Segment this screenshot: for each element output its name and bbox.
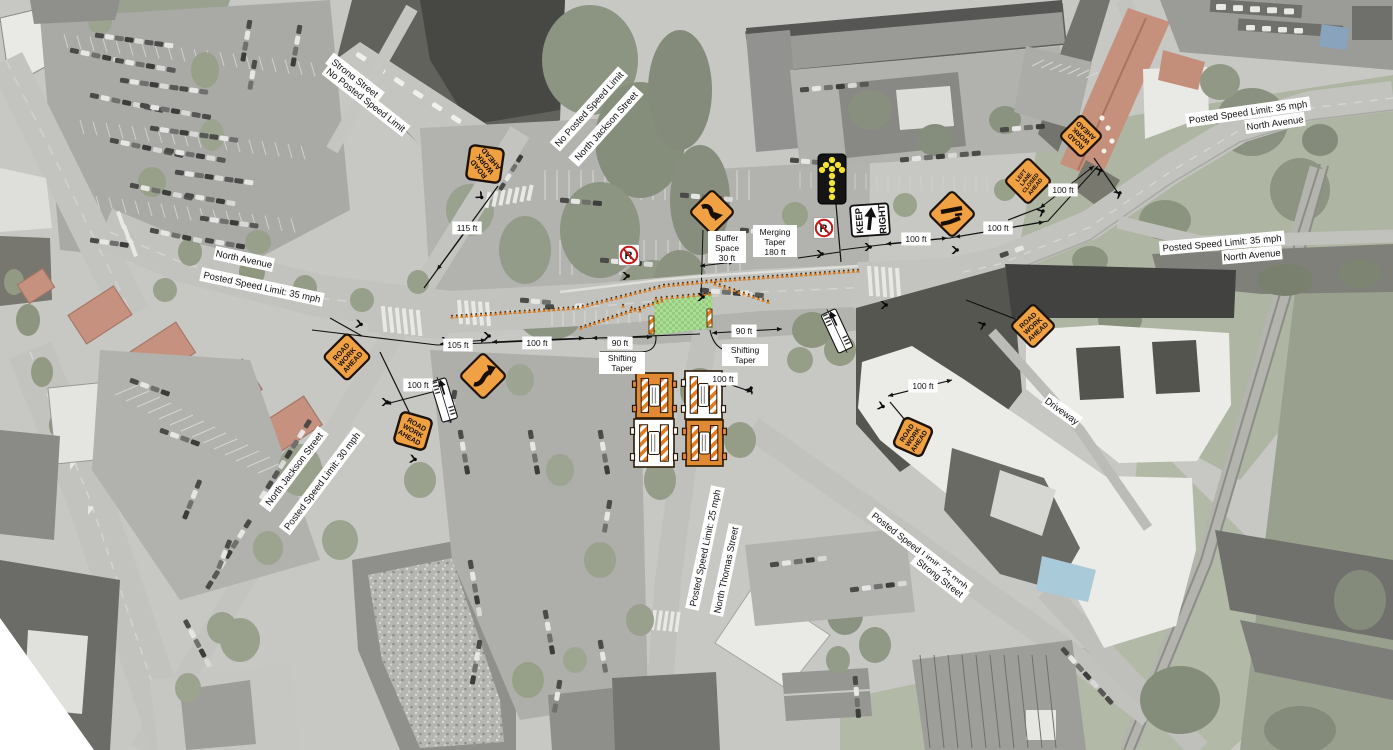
svg-text:90 ft: 90 ft bbox=[736, 326, 753, 336]
svg-text:100 ft: 100 ft bbox=[1052, 185, 1074, 195]
svg-text:100 ft: 100 ft bbox=[905, 234, 927, 244]
svg-text:100 ft: 100 ft bbox=[407, 380, 429, 390]
svg-text:115 ft: 115 ft bbox=[457, 223, 478, 233]
svg-text:105 ft: 105 ft bbox=[447, 340, 469, 350]
svg-text:RIGHT: RIGHT bbox=[876, 204, 889, 234]
svg-text:Taper: Taper bbox=[734, 355, 755, 365]
svg-text:Taper: Taper bbox=[764, 237, 785, 247]
svg-text:Merging: Merging bbox=[760, 227, 791, 237]
svg-text:KEEP: KEEP bbox=[854, 207, 867, 234]
svg-text:Shifting: Shifting bbox=[608, 353, 637, 363]
svg-text:30 ft: 30 ft bbox=[719, 253, 736, 263]
svg-text:Space: Space bbox=[715, 243, 739, 253]
svg-text:180 ft: 180 ft bbox=[764, 247, 786, 257]
svg-text:Buffer: Buffer bbox=[716, 233, 739, 243]
svg-text:100 ft: 100 ft bbox=[526, 338, 548, 348]
svg-text:100 ft: 100 ft bbox=[912, 381, 934, 391]
svg-text:100 ft: 100 ft bbox=[712, 374, 734, 384]
svg-text:Taper: Taper bbox=[611, 363, 632, 373]
svg-text:Shifting: Shifting bbox=[731, 345, 760, 355]
svg-text:90 ft: 90 ft bbox=[612, 338, 629, 348]
svg-text:100 ft: 100 ft bbox=[987, 223, 1009, 233]
